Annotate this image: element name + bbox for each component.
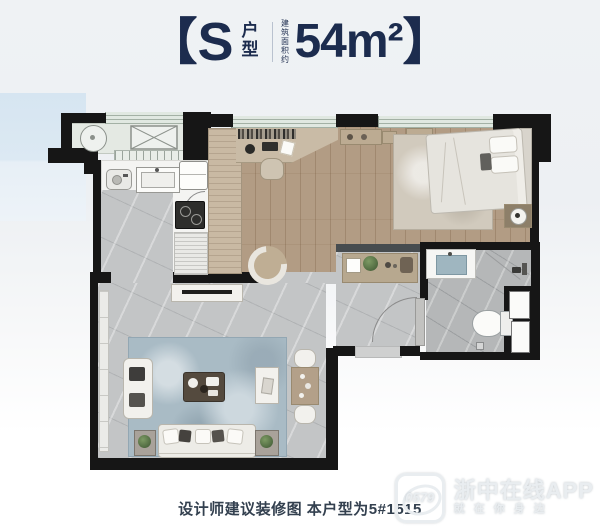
burner-icon [191,214,202,225]
sink-basin-icon [141,172,175,188]
watermark-logo-text: 0579 [398,490,442,505]
dining-chair [294,349,316,368]
armchair-cushion [129,393,145,407]
duvet-fold-line [441,142,446,202]
sofa-pillow-icon [226,428,244,445]
pillow-icon [489,135,518,154]
kettle-icon [112,175,122,185]
watermark: 0579 浙中在线APP 就在你身边 [395,473,594,523]
sofa-end-table [134,430,156,456]
coffee-table [183,372,225,402]
armchair [123,358,153,419]
armchair-cushion [129,367,145,381]
plant-icon [138,435,151,448]
kitchen-prep-sink-icon [106,169,132,190]
desk-lamp-icon [245,144,255,154]
kitchen-sink [136,167,180,193]
duvet-fold-line [453,138,466,205]
x-box-icon [130,125,178,150]
bed [425,128,527,215]
tableware-icon [299,393,304,398]
watermark-logo-icon: 0579 [395,473,445,523]
pillow-icon [490,155,519,174]
wall-kitchen-left [93,163,101,275]
wall-entry-right [400,346,420,356]
decor-item-icon [347,134,353,140]
sofa [158,424,256,458]
sofa-pillow-icon [178,429,191,442]
faucet-icon [123,174,128,177]
side-table [255,367,279,404]
wall-bathroom-right [531,242,540,360]
entry-threshold [355,346,402,358]
wall-studio-northwest [198,114,233,127]
sofa-back-line [159,453,255,454]
floorplan-poster: 【 S 户型 建筑面积约 54m² 】 [0,0,600,529]
studio-window [231,116,338,128]
decor-item-icon [261,377,274,394]
shower-valve [512,267,521,273]
area-value: 54m² [294,16,402,68]
desk-chair [260,158,284,180]
bathroom-vanity [426,249,476,279]
dining-chair [294,405,316,424]
shower-bar [522,263,527,275]
washing-machine-icon [80,125,107,152]
sofa-pillow-icon [211,429,224,442]
wall-studio-north-mid [336,114,378,127]
title-bracket-left: 【 [147,14,197,70]
stove-icon [175,201,205,229]
lamp-center-dot [515,213,520,218]
wall-living-right [326,348,338,470]
accent-pillow-icon [480,153,492,171]
wall-living-left [90,272,98,470]
console-table [342,253,418,283]
balcony-unit-icon [130,125,178,150]
shower-head-icon [512,263,528,276]
washing-machine-door-icon [90,135,95,140]
console-tray-icon [346,258,361,273]
sink-basin-icon [436,255,467,275]
watermark-app-name: 浙中在线APP [454,480,594,502]
plant-icon [260,435,273,448]
bath-niche-shelf [509,291,530,319]
area-label: 建筑面积约 [279,19,290,65]
wall-balcony-left [61,113,72,152]
entry-floor [101,190,173,283]
unit-type-letter: S [197,15,232,69]
shelf-unit [340,129,382,145]
vase-icon [385,262,391,268]
sofa-end-table [255,430,279,456]
decor-item-icon [200,385,208,393]
decor-item-icon [208,390,218,396]
partition-console-wall [336,244,420,252]
page-title: 【 S 户型 建筑面积约 54m² 】 [0,12,600,72]
plant-icon [363,256,378,271]
balcony-window [105,112,188,124]
fridge-icon [179,161,208,190]
vase-icon [393,264,397,268]
keyboard-icon [262,142,278,151]
side-cabinet-strip [99,290,109,452]
floor-drain-icon [476,342,484,350]
sink-faucet-icon [155,168,159,172]
nightstand [504,204,532,228]
decor-item-icon [361,134,367,140]
entry-door-leaf [415,298,425,346]
tableware-icon [300,374,305,379]
tv-icon [182,290,232,294]
sofa-pillow-icon [195,429,211,444]
tv-console [171,284,243,302]
watermark-text-block: 浙中在线APP 就在你身边 [454,480,594,517]
sofa-pillow-icon [162,428,180,445]
sculpture-icon [400,257,413,273]
burner-icon [180,206,191,217]
dining-table [291,367,319,405]
bath-niche-shelf [511,321,530,353]
watermark-slogan: 就在你身边 [454,502,594,517]
tableware-icon [305,383,311,389]
title-bracket-right: 】 [403,14,453,70]
tray-icon [206,377,219,386]
tray-icon [188,378,198,388]
kitchen-counter-mat [174,232,208,275]
wall-living-bottom [90,458,338,470]
bedroom-window [378,116,495,128]
unit-type-label: 户型 [235,21,260,63]
fridge-divider [180,174,206,175]
desk-bookshelf-icon [238,129,296,139]
title-divider [272,22,273,62]
wall-entry-left [333,346,355,356]
floorplan [48,100,548,485]
sink-faucet-icon [448,252,452,256]
